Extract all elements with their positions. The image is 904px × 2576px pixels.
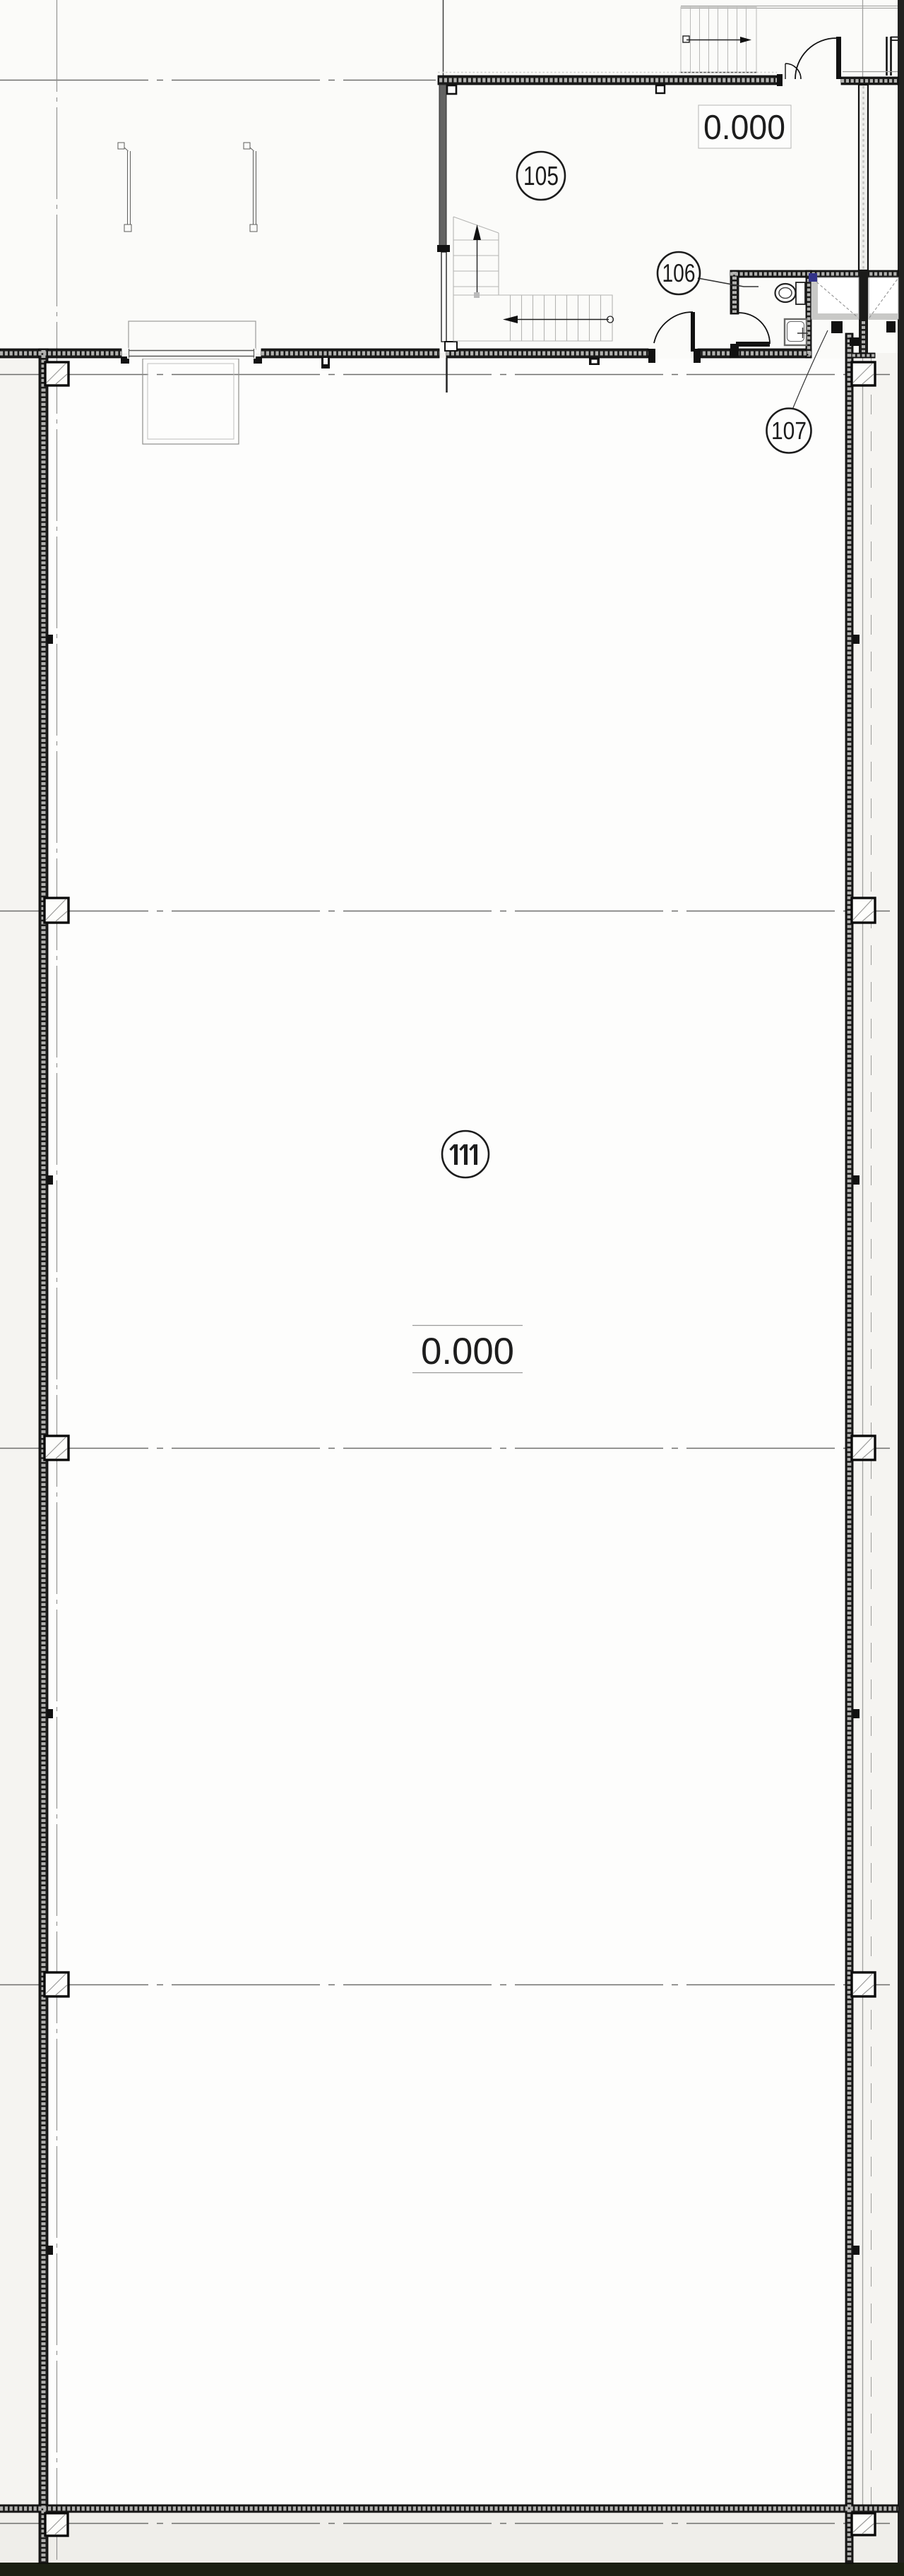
svg-text:105: 105 xyxy=(523,162,559,191)
svg-text:0.000: 0.000 xyxy=(421,1331,514,1372)
svg-text:0.000: 0.000 xyxy=(703,109,785,147)
svg-text:106: 106 xyxy=(662,258,696,287)
svg-text:107: 107 xyxy=(771,417,807,445)
